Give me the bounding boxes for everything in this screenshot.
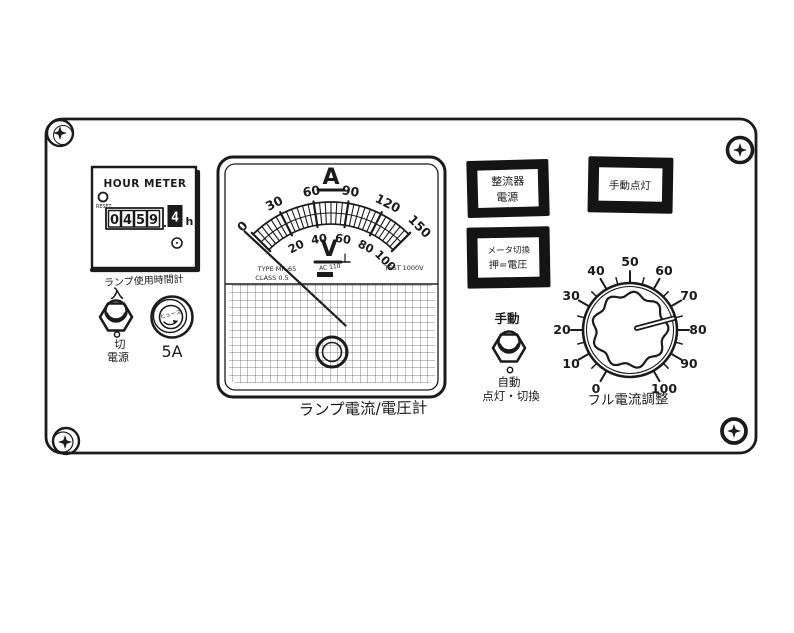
tick-mark [336, 202, 337, 224]
rectifier-symbol-icon [317, 272, 333, 277]
dial-tick-label: 90 [680, 356, 698, 371]
hour-meter-title: HOUR METER [103, 178, 186, 190]
counter-digit: 9 [149, 213, 158, 228]
tick-mark [664, 292, 669, 297]
corner-screw-bottom-right-icon [722, 419, 746, 443]
dial-knob[interactable] [583, 283, 677, 377]
meter-class-text: CLASS 0.5 [255, 274, 288, 282]
counter-decimal-point [164, 225, 166, 227]
tick-mark [375, 217, 386, 236]
counter-digit: 4 [123, 213, 132, 228]
tick-mark [386, 227, 400, 244]
ammeter-scale-label: 30 [263, 192, 286, 213]
tick-mark [592, 364, 597, 369]
dial-tick-label: 60 [655, 263, 673, 278]
power-toggle[interactable]: 入 切 電源 [100, 287, 132, 364]
sketch-canvas: HOUR METER RESET 0 4 5 9 4 h ランプ使用時間計 入 … [0, 0, 794, 633]
corner-screw-bottom-left-icon [53, 428, 79, 454]
dial-tick-label: 20 [553, 322, 571, 337]
voltmeter-scale-label: 80 [356, 237, 377, 257]
ammeter-scale-label: 150 [405, 212, 434, 241]
tick-mark [664, 364, 669, 369]
tick-mark [379, 220, 391, 239]
power-toggle-dot [114, 332, 119, 337]
panel-meter: A 0306090120150 20406080100 V TYPE MR-65… [218, 157, 445, 397]
mode-toggle[interactable]: 手動 自動 点灯・切換 [482, 311, 540, 403]
tick-mark [654, 371, 660, 381]
counter-decimal-digit: 4 [171, 211, 179, 226]
counter-unit: h [186, 215, 194, 228]
meter-test-text: TEST 1000V [383, 264, 424, 272]
tick-mark [262, 227, 276, 244]
tick-mark [676, 316, 682, 318]
tick-mark [276, 217, 287, 236]
mode-toggle-nut [493, 335, 525, 362]
meter-select-line1: メータ切換 [488, 245, 531, 257]
meter-type-text: TYPE MR-65 [257, 265, 297, 273]
reset-button[interactable] [99, 193, 108, 202]
power-toggle-shade [107, 314, 126, 320]
dial-caption: フル電流調整 [587, 391, 668, 408]
voltmeter-scale-label: 20 [286, 237, 307, 257]
mode-caption: 点灯・切換 [482, 389, 540, 403]
dial-tick-label: 80 [689, 322, 707, 337]
dial-tick-label: 40 [587, 263, 605, 278]
reset-label: RESET [96, 204, 111, 210]
hour-counter: 0 4 5 9 4 h [106, 205, 193, 229]
power-caption: 電源 [107, 350, 129, 364]
tick-mark [370, 212, 382, 235]
tick-mark [579, 354, 589, 360]
tick-mark [592, 292, 597, 297]
ammeter-scale-label: 0 [234, 218, 251, 235]
counter-digit: 5 [136, 213, 145, 228]
hour-meter-screw-dot [176, 242, 178, 244]
dial-tick-label: 10 [562, 356, 580, 371]
counter-digit: 0 [110, 213, 119, 228]
meter-aux-text: AC 110 [319, 263, 341, 272]
manual-lamp: 手動点灯 [588, 156, 674, 213]
rectifier-lamp: 整流器 電源 [466, 159, 549, 218]
tick-mark [654, 279, 660, 289]
tick-mark [578, 316, 584, 318]
dial-tick-label: 70 [680, 288, 698, 303]
ammeter-scale-label: 60 [302, 182, 322, 200]
fuse-rating-label: 5A [161, 342, 182, 361]
tick-mark [601, 371, 607, 381]
tick-mark [578, 342, 584, 344]
tick-mark [383, 223, 396, 241]
tick-mark [642, 278, 644, 284]
corner-screw-top-right-icon [728, 138, 753, 163]
ammeter-symbol: A [322, 165, 339, 190]
corner-screw-top-left-icon [47, 120, 73, 146]
tick-mark [579, 301, 589, 307]
dial-tick-label: 50 [621, 254, 639, 269]
mode-auto-label: 自動 [498, 375, 521, 389]
tick-mark [280, 212, 292, 235]
voltmeter-symbol: V [320, 237, 337, 262]
rectifier-lamp-line1: 整流器 [491, 174, 524, 189]
meter-caption: ランプ電流/電圧計 [298, 399, 427, 419]
ammeter-scale-label: 90 [341, 182, 361, 200]
tick-mark [266, 223, 279, 241]
tick-mark [325, 202, 326, 224]
tick-mark [601, 279, 607, 289]
tick-mark [676, 342, 682, 344]
tick-mark [390, 230, 405, 246]
meter-select-line2: 押=電圧 [489, 258, 528, 272]
power-toggle-nut [100, 304, 132, 331]
mode-toggle-dot [507, 367, 512, 372]
rectifier-lamp-line2: 電源 [496, 190, 518, 205]
meter-select-button[interactable]: メータ切換 押=電圧 [466, 226, 550, 288]
fuse-holder[interactable]: ヒューズ 5A [152, 297, 193, 362]
adjust-dial: 0102030405060708090100 フル電流調整 [553, 254, 707, 409]
power-off-label: 切 [115, 338, 126, 351]
hour-meter: HOUR METER RESET 0 4 5 9 4 h ランプ使用時間計 [92, 167, 198, 289]
tick-mark [271, 220, 283, 239]
mode-manual-label: 手動 [494, 311, 519, 326]
manual-lamp-label: 手動点灯 [609, 179, 652, 193]
tick-mark [616, 278, 618, 284]
mode-toggle-shade [500, 345, 519, 351]
dial-tick-label: 30 [562, 288, 580, 303]
